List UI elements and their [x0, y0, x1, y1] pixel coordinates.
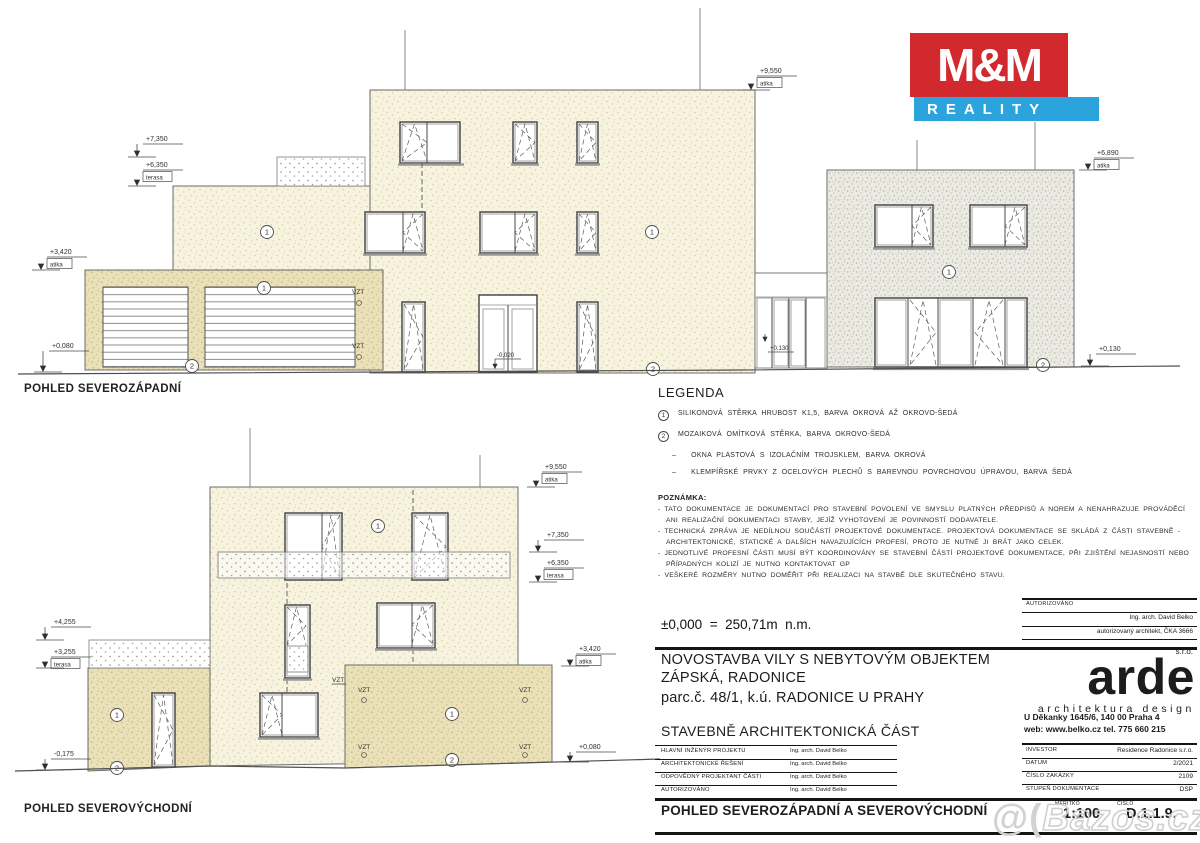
legend-item: – OKNA PLASTOVÁ S IZOLAČNÍM TROJSKLEM, B…	[658, 452, 1185, 459]
meta-value: Residence Radonice s.r.o.	[1026, 747, 1193, 754]
dim-mark: +0,130	[1081, 346, 1136, 366]
note-item: - VEŠKERÉ ROZMĚRY NUTNO DOMĚŘIT PŘI REAL…	[658, 571, 1198, 582]
note-item: - JEDNOTLIVÉ PROFESNÍ ČÁSTI MUSÍ BÝT KOO…	[658, 549, 1198, 570]
svg-text:terasa: terasa	[547, 574, 564, 580]
legend-item-text: SILIKONOVÁ STĚRKA HRUBOST K1,5, BARVA OK…	[678, 410, 958, 417]
window	[375, 603, 437, 650]
role-label: ARCHITEKTONICKÉ ŘEŠENÍ	[661, 761, 744, 767]
window	[398, 122, 464, 165]
svg-text:-0,175: -0,175	[54, 751, 74, 758]
svg-text:+0,080: +0,080	[579, 744, 601, 751]
legend-marker-2: 2	[658, 431, 669, 442]
view-title-northeast: POHLED SEVEROVÝCHODNÍ	[24, 803, 192, 815]
dim-mark: +3,255 terasa	[36, 649, 91, 669]
svg-text:+9,550: +9,550	[545, 464, 567, 471]
entrance-door: -0,020	[479, 295, 537, 372]
project-part: STAVEBNĚ ARCHITEKTONICKÁ ČÁST	[661, 723, 919, 739]
svg-text:VZT: VZT	[519, 687, 531, 694]
dash-marker: –	[672, 469, 676, 476]
legend-item: – KLEMPÍŘSKÉ PRVKY Z OCELOVÝCH PLECHŮ S …	[658, 469, 1185, 476]
window	[968, 205, 1027, 249]
svg-text:+6,350: +6,350	[547, 560, 569, 567]
svg-text:2: 2	[190, 362, 194, 371]
svg-text:VZT: VZT	[358, 744, 370, 751]
legend-item: 2 MOZAIKOVÁ OMÍTKOVÁ STĚRKA, BARVA OKROV…	[658, 431, 1185, 442]
window	[363, 212, 427, 255]
svg-text:atika: atika	[545, 478, 558, 484]
authorized-cert: autorizovaný architekt, ČKA 3666	[1026, 628, 1193, 635]
svg-text:1: 1	[265, 228, 269, 237]
legend: LEGENDA 1 SILIKONOVÁ STĚRKA HRUBOST K1,5…	[658, 385, 1185, 486]
firm-contact-line: web: www.belko.cz tel. 775 660 215	[1024, 724, 1195, 736]
dim-mark: +4,255	[36, 619, 91, 640]
window	[478, 212, 539, 255]
svg-text:+3,420: +3,420	[579, 646, 601, 653]
svg-text:+3,255: +3,255	[54, 649, 76, 656]
role-value: Ing. arch. David Belko	[790, 761, 847, 767]
svg-text:1: 1	[947, 268, 951, 277]
role-label: AUTORIZOVÁNO	[661, 787, 710, 793]
role-value: Ing. arch. David Belko	[790, 748, 847, 754]
mm-logo-top: M&M	[910, 33, 1068, 97]
svg-text:+3,420: +3,420	[50, 249, 72, 256]
role-label: HLAVNÍ INŽENÝR PROJEKTU	[661, 748, 746, 754]
svg-text:VZT: VZT	[519, 744, 531, 751]
dim-mark: +9,550 atika	[742, 68, 797, 90]
datum-elevation: ±0,000 = 250,71m n.m.	[661, 617, 811, 632]
role-label: ODPOVĚDNÝ PROJEKTANT ČÁSTI	[661, 774, 761, 780]
meta-value: 2/2021	[1026, 760, 1193, 767]
svg-text:+4,255: +4,255	[54, 619, 76, 626]
project-title-line1: NOVOSTAVBA VILY S NEBYTOVÝM OBJEKTEM	[661, 652, 990, 668]
svg-text:+0,080: +0,080	[52, 343, 74, 350]
dim-mark: +0,080	[34, 343, 89, 372]
role-value: Ing. arch. David Belko	[790, 787, 847, 793]
svg-text:2: 2	[651, 365, 655, 374]
notes: POZNÁMKA: - TATO DOKUMENTACE JE DOKUMENT…	[658, 493, 1198, 583]
svg-text:+7,350: +7,350	[146, 136, 168, 143]
svg-text:VZT: VZT	[352, 343, 364, 350]
firm-address: U Děkanky 1645/6, 140 00 Praha 4 web: ww…	[1024, 712, 1195, 736]
svg-text:+6,890: +6,890	[1097, 150, 1119, 157]
dim-mark: +3,420 atika	[561, 646, 616, 666]
project-title-line2: ZÁPSKÁ, RADONICE	[661, 670, 806, 686]
garage-block	[85, 270, 383, 370]
dash-marker: –	[672, 452, 676, 459]
firm-name: arde	[1024, 652, 1195, 702]
svg-text:VZT: VZT	[352, 289, 364, 296]
watermark-text: Bazos.cz	[1042, 797, 1200, 839]
svg-text:-0,020: -0,020	[497, 353, 515, 359]
svg-text:+0,130: +0,130	[1099, 346, 1121, 353]
svg-text:+6,350: +6,350	[146, 162, 168, 169]
dim-mark: +6,350 terasa	[128, 162, 183, 186]
svg-text:+7,350: +7,350	[547, 532, 569, 539]
project-title-line3: parc.č. 48/1, k.ú. RADONICE U PRAHY	[661, 690, 924, 706]
svg-text:VZT: VZT	[358, 687, 370, 694]
view-title-northwest: POHLED SEVEROZÁPADNÍ	[24, 383, 181, 395]
legend-marker-1: 1	[658, 410, 669, 421]
window	[402, 302, 425, 372]
drawing-sheet: +0,130	[0, 0, 1200, 843]
authorized-label: AUTORIZOVÁNO	[1026, 601, 1074, 607]
svg-text:+9,550: +9,550	[760, 68, 782, 75]
svg-text:atika: atika	[1097, 164, 1110, 170]
firm-address-line: U Děkanky 1645/6, 140 00 Praha 4	[1024, 712, 1195, 724]
legend-item: 1 SILIKONOVÁ STĚRKA HRUBOST K1,5, BARVA …	[658, 410, 1185, 421]
svg-text:1: 1	[115, 711, 119, 720]
dim-mark: -0,175	[36, 751, 91, 770]
dim-mark: +3,420 atika	[32, 249, 87, 270]
window	[258, 693, 320, 739]
mm-reality-logo: M&M REALITY	[910, 33, 1102, 122]
notes-title: POZNÁMKA:	[658, 493, 1198, 502]
elevation-northeast: VZT VZT VZT VZT VZT 1 1 2 1 2 +9,550	[15, 428, 660, 775]
role-value: Ing. arch. David Belko	[790, 774, 847, 780]
window	[873, 205, 935, 249]
svg-text:VZT: VZT	[332, 677, 344, 684]
dim-mark: +7,350	[529, 532, 584, 552]
dim-mark: +7,350	[128, 136, 183, 157]
dim-mark: +9,550 atika	[527, 464, 582, 487]
svg-text:1: 1	[650, 228, 654, 237]
window	[283, 605, 312, 680]
meta-value: 2109	[1026, 773, 1193, 780]
sheet-title: POHLED SEVEROZÁPADNÍ A SEVEROVÝCHODNÍ	[661, 803, 987, 818]
note-item: - TECHNICKÁ ZPRÁVA JE NEDÍLNOU SOUČÁSTÍ …	[658, 527, 1198, 548]
window	[577, 302, 598, 372]
svg-text:1: 1	[450, 710, 454, 719]
svg-text:+0,130: +0,130	[770, 346, 789, 352]
watermark-bazos: @(Bazos.cz	[992, 797, 1200, 839]
watermark-at-icon: @(	[992, 797, 1042, 839]
legend-title: LEGENDA	[658, 385, 1185, 400]
svg-text:2: 2	[1041, 361, 1045, 370]
svg-text:2: 2	[450, 756, 454, 765]
note-item: - TATO DOKUMENTACE JE DOKUMENTACÍ PRO ST…	[658, 505, 1198, 526]
legend-item-text: KLEMPÍŘSKÉ PRVKY Z OCELOVÝCH PLECHŮ S BA…	[691, 469, 1072, 476]
meta-value: DSP	[1026, 786, 1193, 793]
dim-mark: +6,350 terasa	[529, 560, 584, 582]
glazed-wall	[873, 298, 1029, 369]
mm-logo-bottom: REALITY	[914, 97, 1099, 121]
window	[152, 693, 175, 767]
firm-logo: s.r.o. arde architektura design	[1024, 648, 1195, 715]
left-block	[88, 640, 210, 771]
svg-text:1: 1	[376, 522, 380, 531]
window	[575, 212, 600, 255]
connector-doors: +0,130	[755, 273, 827, 368]
dim-mark: +6,890 atika	[1079, 150, 1134, 170]
svg-text:atika: atika	[760, 82, 773, 88]
legend-item-text: MOZAIKOVÁ OMÍTKOVÁ STĚRKA, BARVA OKROVO-…	[678, 431, 890, 438]
svg-text:atika: atika	[50, 263, 63, 269]
legend-item-text: OKNA PLASTOVÁ S IZOLAČNÍM TROJSKLEM, BAR…	[691, 452, 925, 459]
authorized-name: Ing. arch. David Belko	[1026, 614, 1193, 621]
svg-text:atika: atika	[579, 660, 592, 666]
dim-mark: +0,080	[561, 744, 616, 762]
svg-text:terasa: terasa	[146, 176, 163, 182]
svg-text:1: 1	[262, 284, 266, 293]
window	[511, 122, 539, 165]
window	[575, 122, 600, 165]
